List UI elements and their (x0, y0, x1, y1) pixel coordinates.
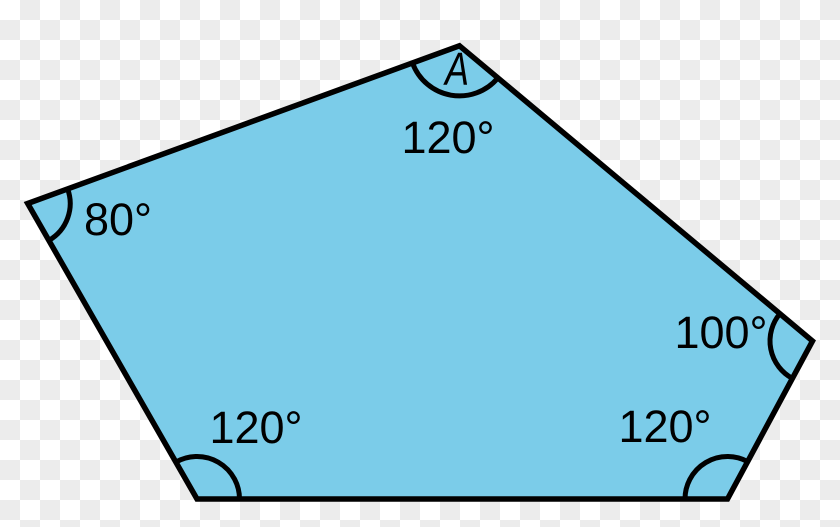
svg-text:80°: 80° (84, 194, 152, 245)
svg-text:120°: 120° (209, 402, 302, 453)
svg-text:120°: 120° (401, 112, 494, 163)
svg-text:A: A (443, 43, 469, 95)
svg-text:100°: 100° (674, 307, 767, 358)
svg-text:120°: 120° (618, 401, 711, 452)
